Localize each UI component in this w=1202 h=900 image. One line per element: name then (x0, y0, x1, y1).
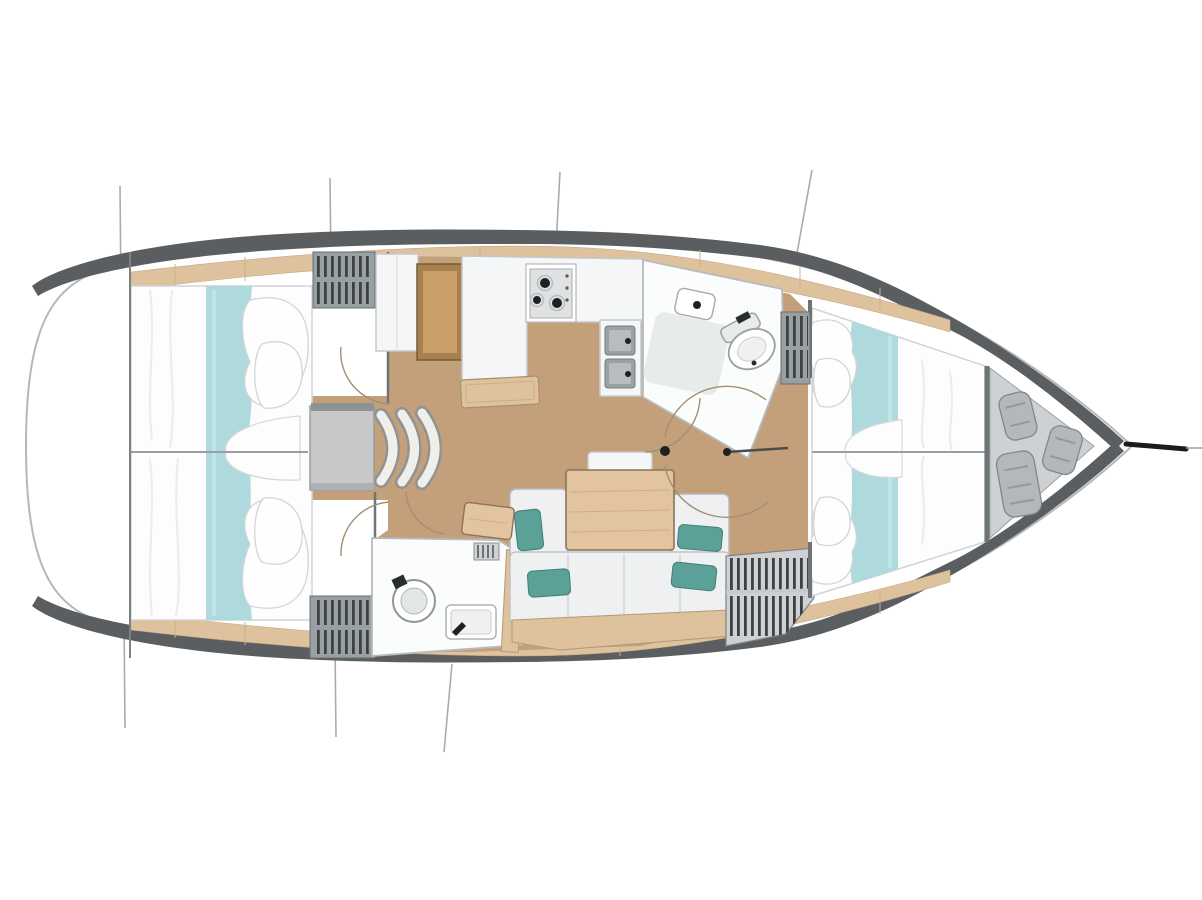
stool (461, 502, 515, 540)
yacht-floor-plan (0, 0, 1202, 900)
yacht-floor-plan-canvas (0, 0, 1202, 900)
louvered-locker-forward (781, 312, 810, 384)
stove (526, 264, 576, 322)
galley-double-sink (600, 320, 641, 396)
vent-grill (474, 543, 499, 560)
burner (540, 278, 550, 288)
basin-faucet (693, 301, 701, 309)
aft-cabins (130, 252, 312, 658)
louvered-locker-aft-starboard (310, 596, 375, 658)
burner (552, 298, 562, 308)
louvered-locker-aft-port (313, 252, 375, 308)
bow-sprit (1126, 444, 1202, 449)
faucet (625, 338, 631, 344)
rigging-line (444, 664, 452, 752)
galley-shelf (460, 376, 539, 408)
mast-post (660, 446, 670, 456)
saloon-table (566, 470, 674, 550)
burner (533, 296, 541, 304)
door-hinge (723, 448, 731, 456)
faucet (625, 371, 631, 377)
chart-table-top (423, 271, 457, 353)
